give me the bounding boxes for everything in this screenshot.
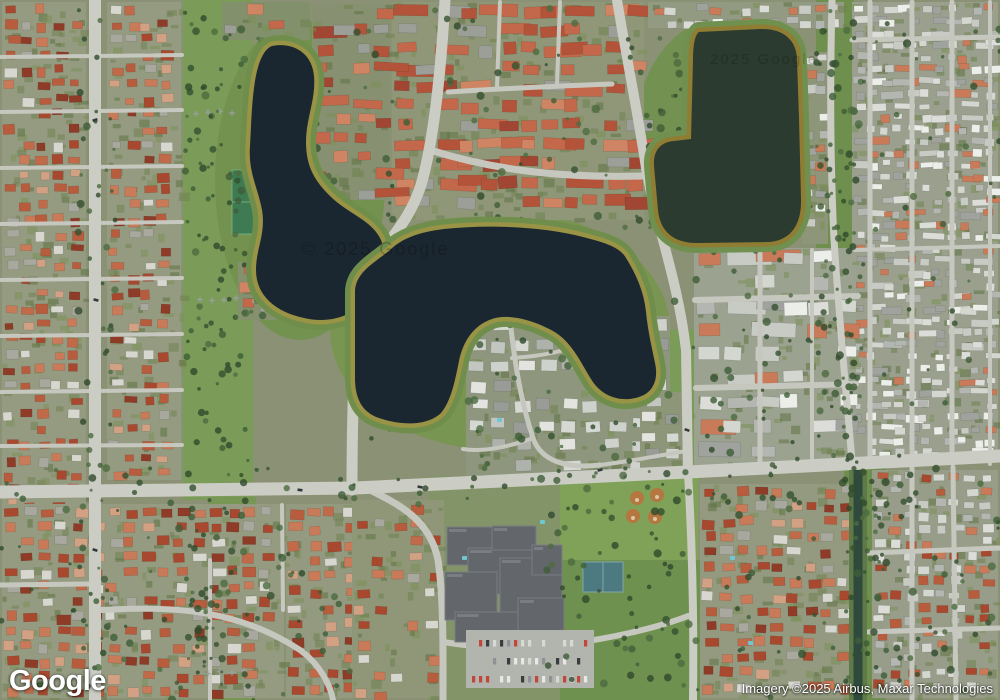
satellite-imagery[interactable]: © 2025 Google2025 Google <box>0 0 1000 700</box>
google-logo[interactable]: Google <box>9 665 106 698</box>
map-watermark: 2025 Google <box>710 51 818 68</box>
attribution-text: Imagery ©2025 Airbus, Maxar Technologies <box>742 681 993 696</box>
block-left-mid <box>107 2 190 481</box>
block-se-west-canal <box>700 484 856 700</box>
block-school-west <box>352 500 447 700</box>
map-viewport[interactable]: © 2025 Google2025 Google Google Imagery … <box>0 0 1000 700</box>
map-watermark: © 2025 Google <box>302 239 449 259</box>
block-se-east-canal <box>872 470 1000 700</box>
